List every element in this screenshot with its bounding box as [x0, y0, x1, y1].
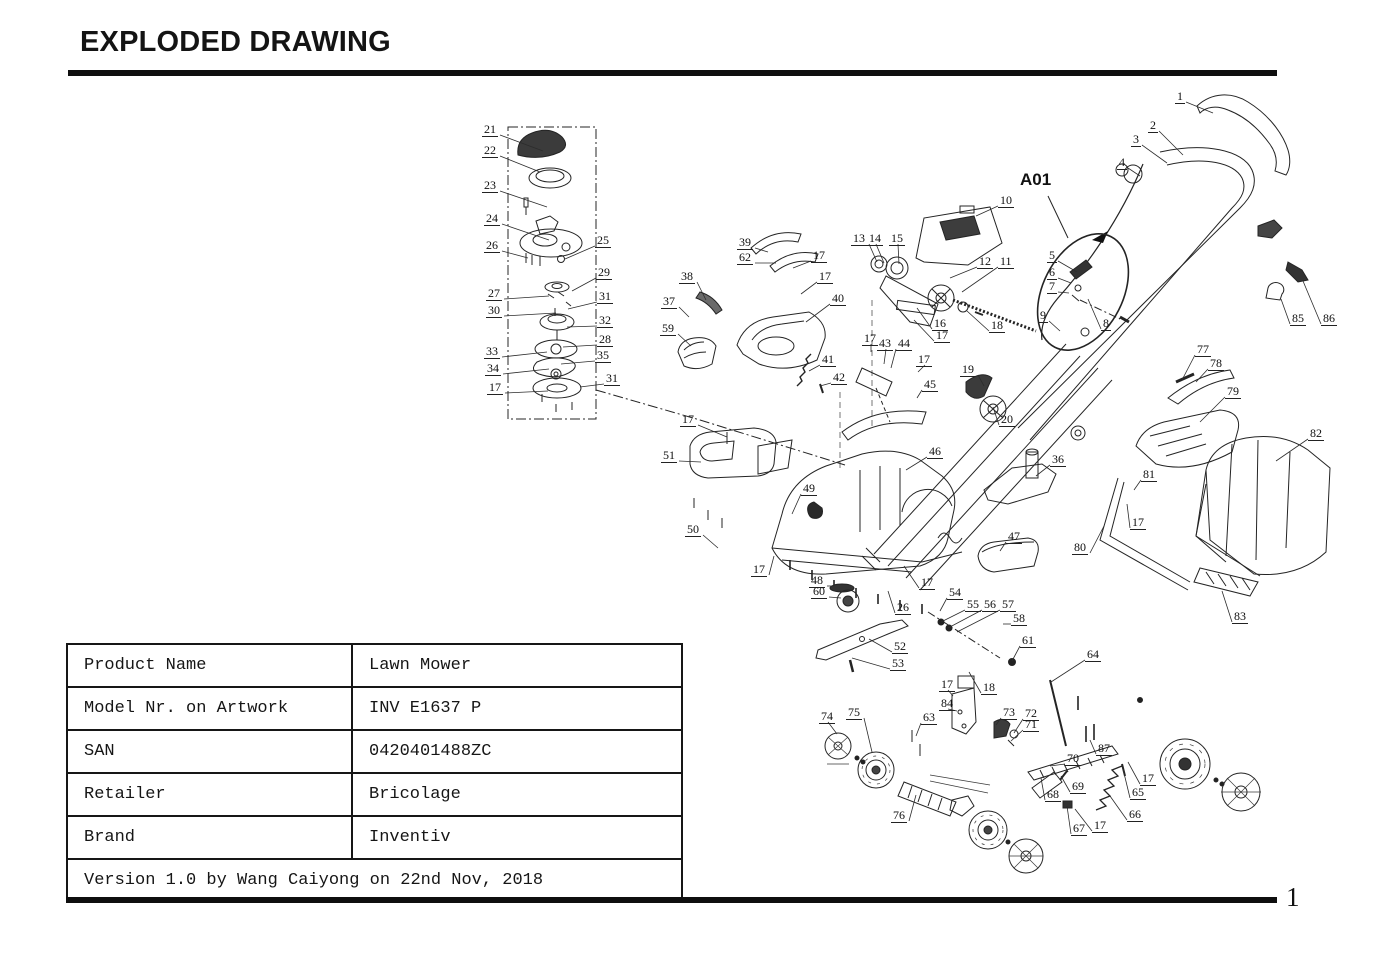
version-note: Version 1.0 by Wang Caiyong on 22nd Nov,… [67, 859, 682, 902]
row-value: INV E1637 P [352, 687, 682, 730]
row-label: Brand [67, 816, 352, 859]
row-label: Product Name [67, 644, 352, 687]
row-label: Retailer [67, 773, 352, 816]
page-number: 1 [1286, 882, 1300, 913]
product-info-table: Product Name Lawn Mower Model Nr. on Art… [66, 643, 683, 903]
motor-subassembly-art [508, 127, 845, 465]
footer-rule [66, 897, 1277, 903]
row-value: Bricolage [352, 773, 682, 816]
table-row: Product Name Lawn Mower [67, 644, 682, 687]
handle-art [862, 95, 1308, 590]
detail-view-label: A01 [1020, 170, 1051, 190]
row-label: SAN [67, 730, 352, 773]
wheels-art [825, 676, 1261, 873]
row-label: Model Nr. on Artwork [67, 687, 352, 730]
grassbag-art [1100, 370, 1330, 596]
deck-art [690, 411, 1066, 746]
table-row: Model Nr. on Artwork INV E1637 P [67, 687, 682, 730]
table-row: SAN 0420401488ZC [67, 730, 682, 773]
row-value: Lawn Mower [352, 644, 682, 687]
table-footer-row: Version 1.0 by Wang Caiyong on 22nd Nov,… [67, 859, 682, 902]
table-row: Retailer Bricolage [67, 773, 682, 816]
table-row: Brand Inventiv [67, 816, 682, 859]
row-value: 0420401488ZC [352, 730, 682, 773]
top-covers-art [678, 233, 872, 470]
page: EXPLODED DRAWING [0, 0, 1377, 953]
motor-battery-art [856, 206, 1036, 422]
row-value: Inventiv [352, 816, 682, 859]
